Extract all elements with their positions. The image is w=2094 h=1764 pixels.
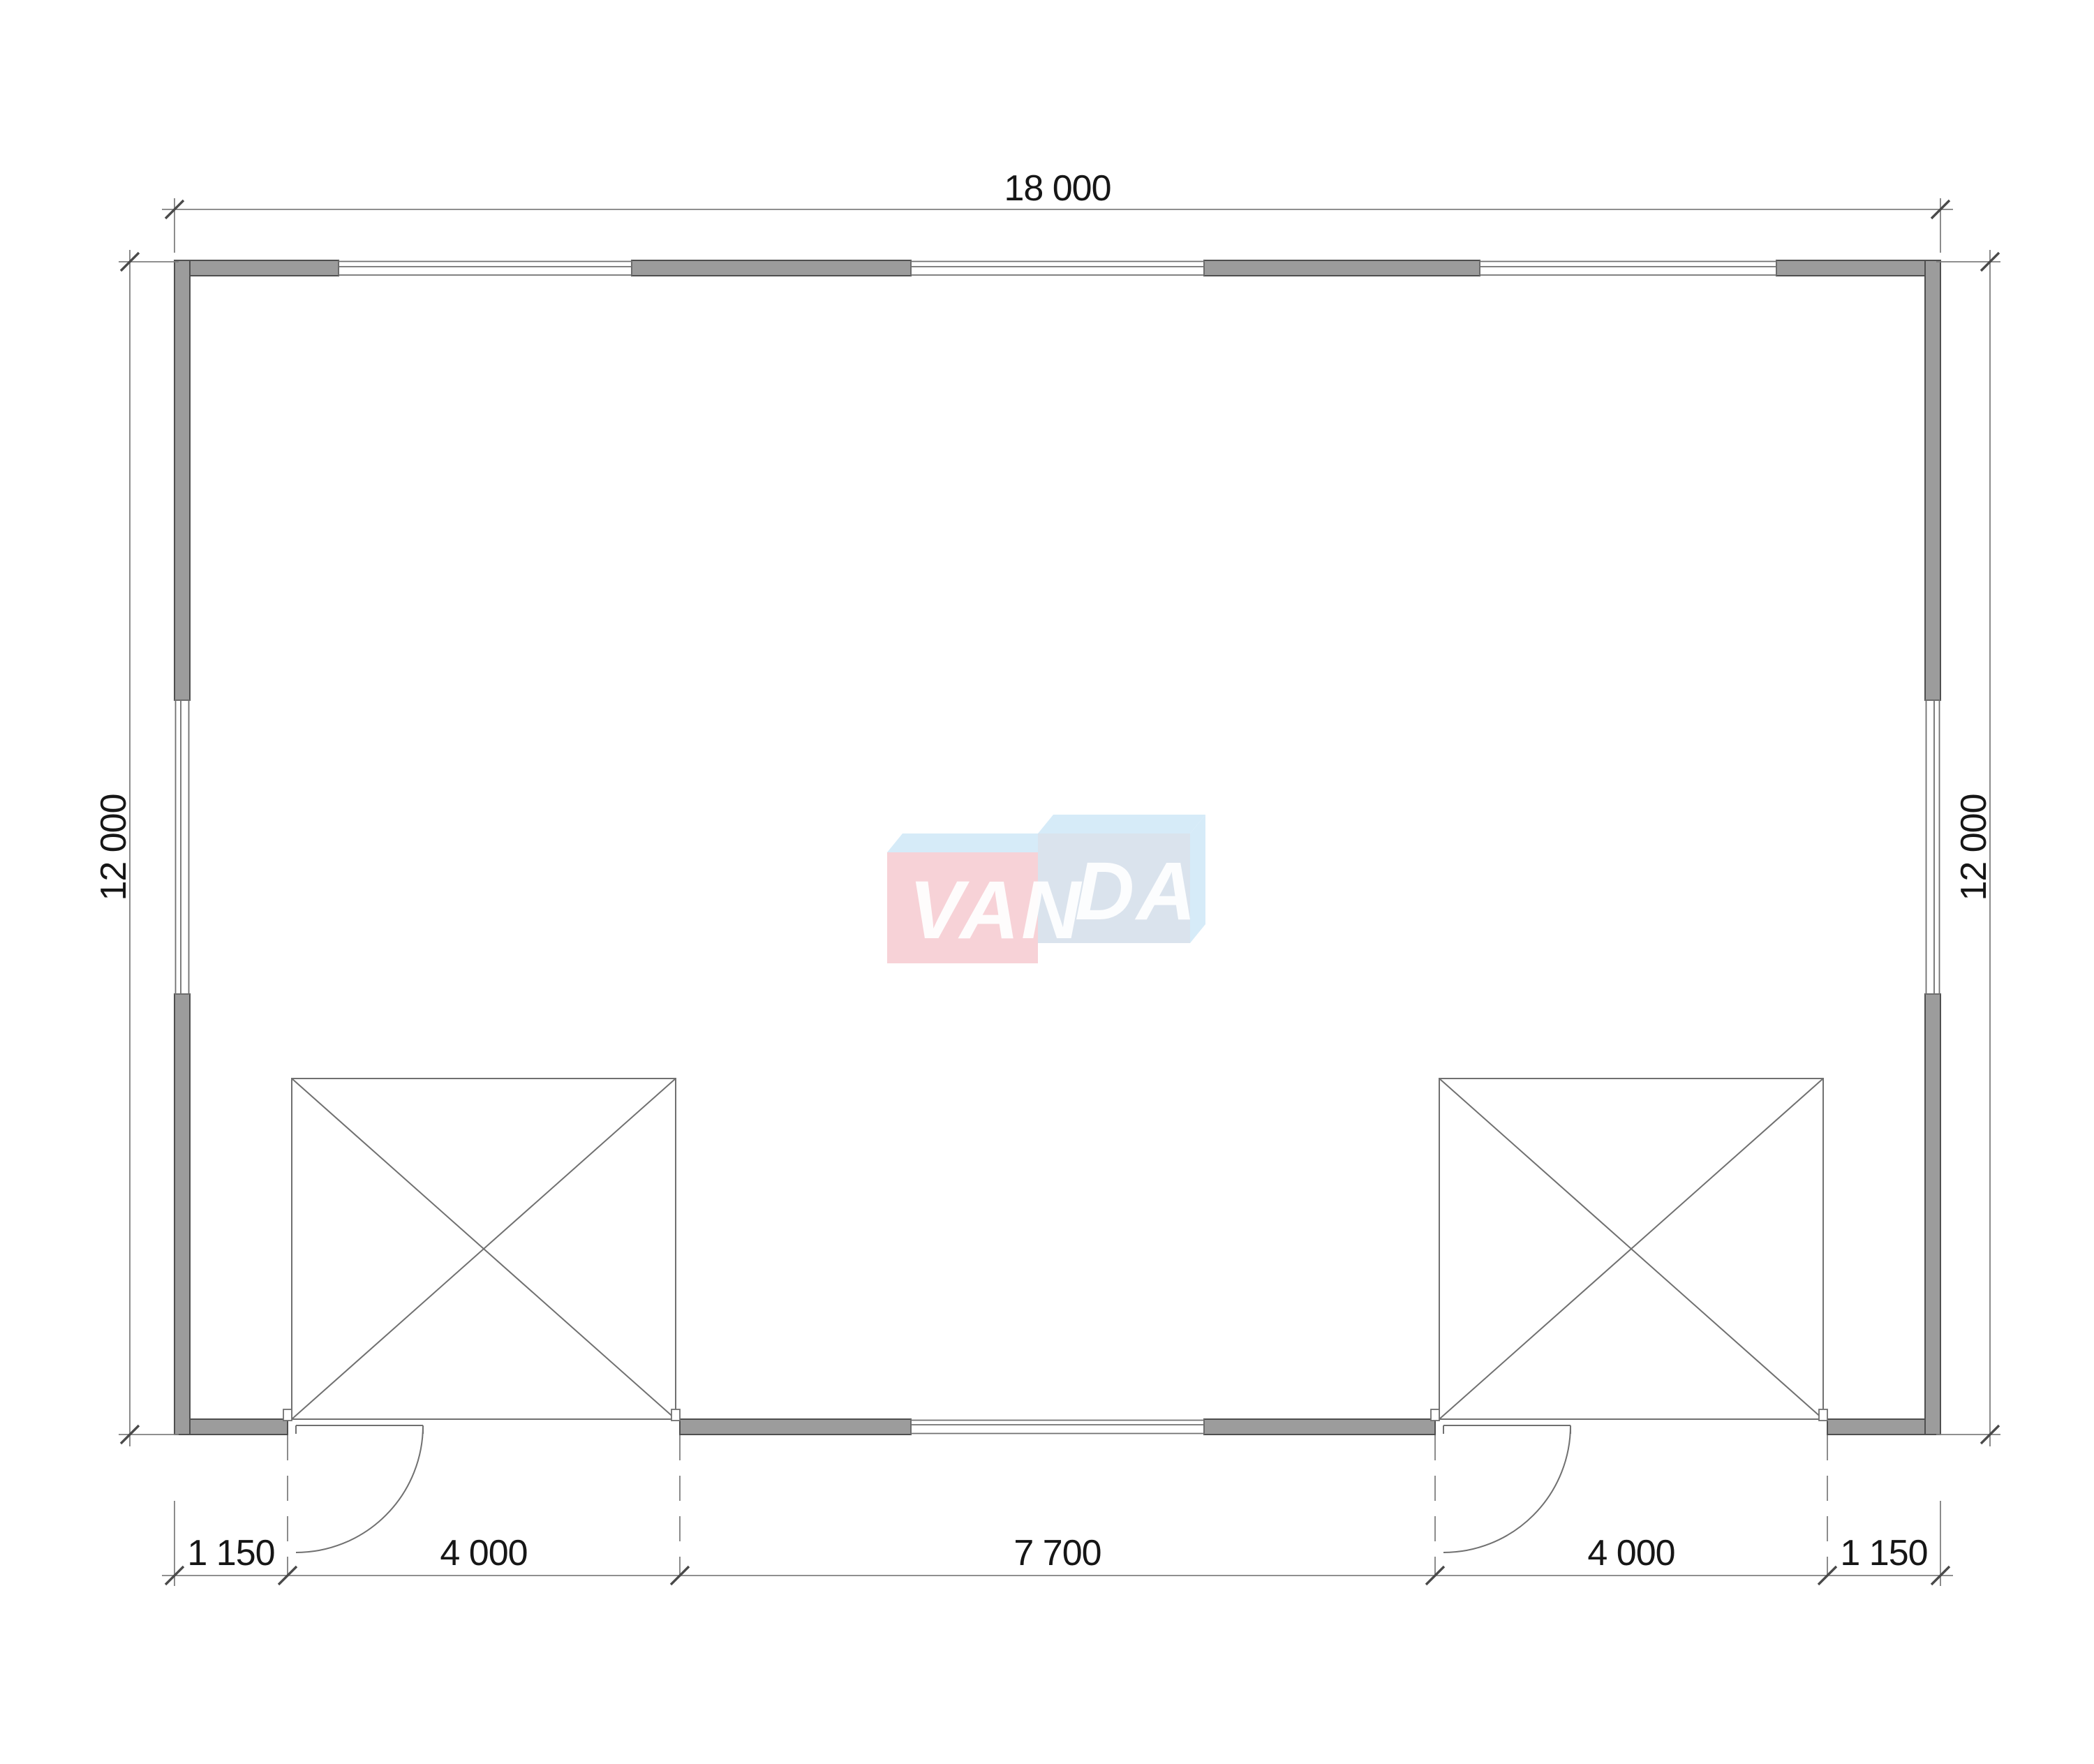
window-left: [174, 700, 190, 994]
dimension-top: 18 000: [162, 168, 1953, 253]
dimension-bottom: 1 150 4 000 7 700 4 000 1 150: [162, 1435, 1953, 1586]
watermark-text-right: DA: [1075, 845, 1198, 937]
dim-label-bottom-4: 4 000: [1587, 1533, 1675, 1573]
garage-door-left: [292, 1079, 676, 1419]
window-right: [1925, 700, 1940, 994]
dim-label-right: 12 000: [1954, 794, 1994, 900]
dim-label-bottom-3: 7 700: [1013, 1533, 1101, 1573]
window-bottom: [911, 1419, 1204, 1435]
top-wall-segment: [1776, 260, 1940, 276]
door-swing-left: [296, 1425, 423, 1552]
top-wall-segment: [1204, 260, 1480, 276]
dim-label-bottom-1: 1 150: [187, 1533, 274, 1573]
window-top-2: [911, 260, 1204, 276]
left-wall-segment: [174, 994, 190, 1435]
door-jamb: [1819, 1409, 1827, 1421]
logo-right-box-top-bevel: [1038, 815, 1205, 833]
door-jamb: [283, 1409, 292, 1421]
floor-plan-drawing: 18 000 12 000 12 000 1 150 4 000 7: [0, 0, 2094, 1764]
bottom-wall-segment: [680, 1419, 911, 1435]
dimension-right: 12 000: [1936, 250, 2000, 1446]
top-wall-segment: [174, 260, 339, 276]
bottom-wall-segment: [1204, 1419, 1435, 1435]
dim-label-bottom-2: 4 000: [440, 1533, 527, 1573]
bottom-wall-segment: [1827, 1419, 1940, 1435]
dim-label-bottom-5: 1 150: [1840, 1533, 1927, 1573]
garage-doors: [283, 1079, 1827, 1421]
door-swing-right: [1443, 1425, 1570, 1552]
window-top-3: [1480, 260, 1776, 276]
door-jamb: [1431, 1409, 1439, 1421]
garage-door-right: [1439, 1079, 1823, 1419]
right-wall-segment: [1925, 260, 1940, 700]
door-jamb: [671, 1409, 680, 1421]
watermark-text-left: VAN: [909, 864, 1083, 956]
dim-label-left: 12 000: [94, 794, 134, 900]
window-top-1: [339, 260, 632, 276]
dimension-left: 12 000: [94, 250, 179, 1446]
right-wall-segment: [1925, 994, 1940, 1435]
bottom-wall-segment: [174, 1419, 288, 1435]
top-wall-segment: [632, 260, 911, 276]
logo-left-box-top-bevel: [887, 833, 1053, 852]
left-wall-segment: [174, 260, 190, 700]
dim-label-top: 18 000: [1004, 168, 1111, 209]
watermark-logo: VAN DA: [887, 815, 1205, 963]
